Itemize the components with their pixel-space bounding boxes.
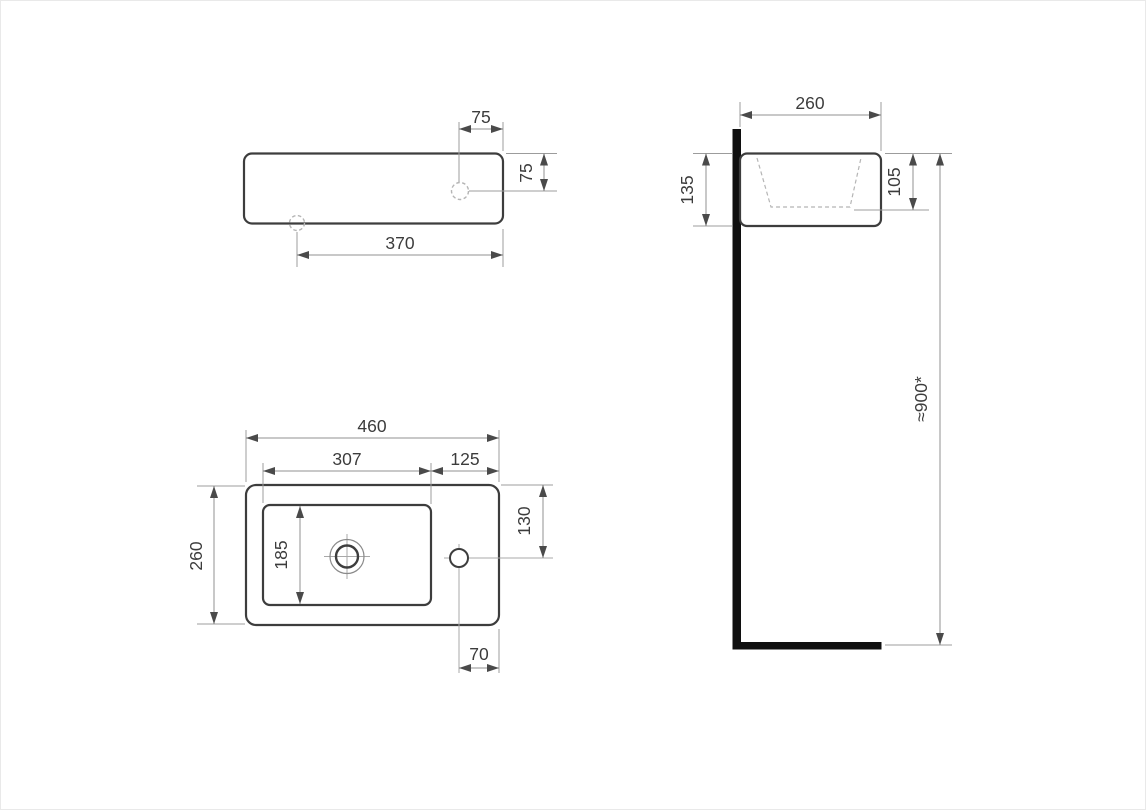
dim-label-side-135: 135 — [677, 175, 697, 204]
front-view: 75 75 370 — [244, 107, 557, 267]
dim-label-plan-130: 130 — [514, 506, 534, 535]
dim-label-side-900: ≈900* — [911, 376, 931, 422]
dim-label-side-260: 260 — [795, 93, 824, 113]
dim-plan-depth: 260 — [186, 486, 245, 624]
dim-label-plan-260: 260 — [186, 541, 206, 570]
dim-plan-tap-from-back: 130 — [501, 485, 553, 558]
dim-label-front-75h: 75 — [471, 107, 490, 127]
dim-label-front-370: 370 — [385, 233, 414, 253]
dim-label-plan-125: 125 — [450, 449, 479, 469]
basin-side-outline — [740, 154, 881, 227]
dim-side-depth: 260 — [740, 93, 881, 151]
washbasin-technical-drawing: 75 75 370 260 — [1, 1, 1146, 810]
basin-front-outline — [244, 154, 503, 224]
technical-drawing-page: 75 75 370 260 — [0, 0, 1146, 810]
dim-plan-tap-from-right: 70 — [459, 629, 499, 673]
tap-hole-circle — [450, 549, 468, 567]
side-view: 260 135 105 ≈900* — [677, 93, 952, 650]
dim-front-drain-to-edge: 370 — [297, 229, 503, 267]
dim-label-plan-185: 185 — [271, 540, 291, 569]
dim-plan-right-deck: 125 — [431, 449, 499, 471]
dim-side-height: 135 — [677, 154, 732, 227]
dim-label-front-75v: 75 — [516, 163, 536, 182]
plan-view: 460 307 125 260 185 — [186, 416, 553, 673]
dim-label-plan-70: 70 — [469, 644, 489, 664]
dim-label-plan-307: 307 — [332, 449, 361, 469]
dim-label-side-105: 105 — [884, 167, 904, 196]
dim-label-plan-460: 460 — [357, 416, 386, 436]
dim-side-mount-height: ≈900* — [885, 154, 952, 646]
floor-section — [733, 642, 882, 650]
